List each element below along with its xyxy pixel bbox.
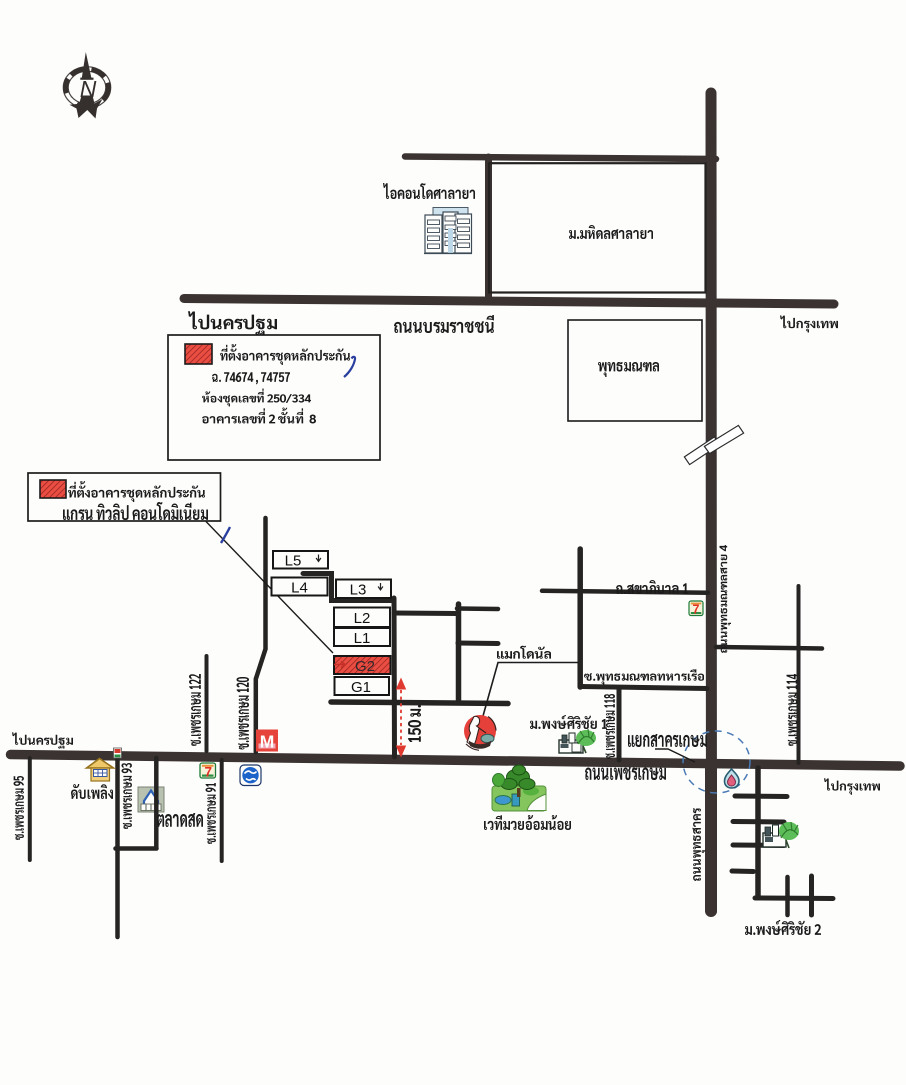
svg-text:L5: L5 [285,553,302,570]
svg-text:L2: L2 [354,610,371,627]
svg-text:L3: L3 [350,582,367,599]
svg-text:M: M [260,732,275,752]
svg-text:N: N [80,76,97,102]
svg-text:G2: G2 [355,658,375,675]
svg-text:G1: G1 [351,679,371,696]
svg-text:L1: L1 [354,630,371,647]
svg-text:L4: L4 [291,580,308,597]
svg-text:7: 7 [693,603,700,617]
svg-text:7: 7 [204,765,212,780]
